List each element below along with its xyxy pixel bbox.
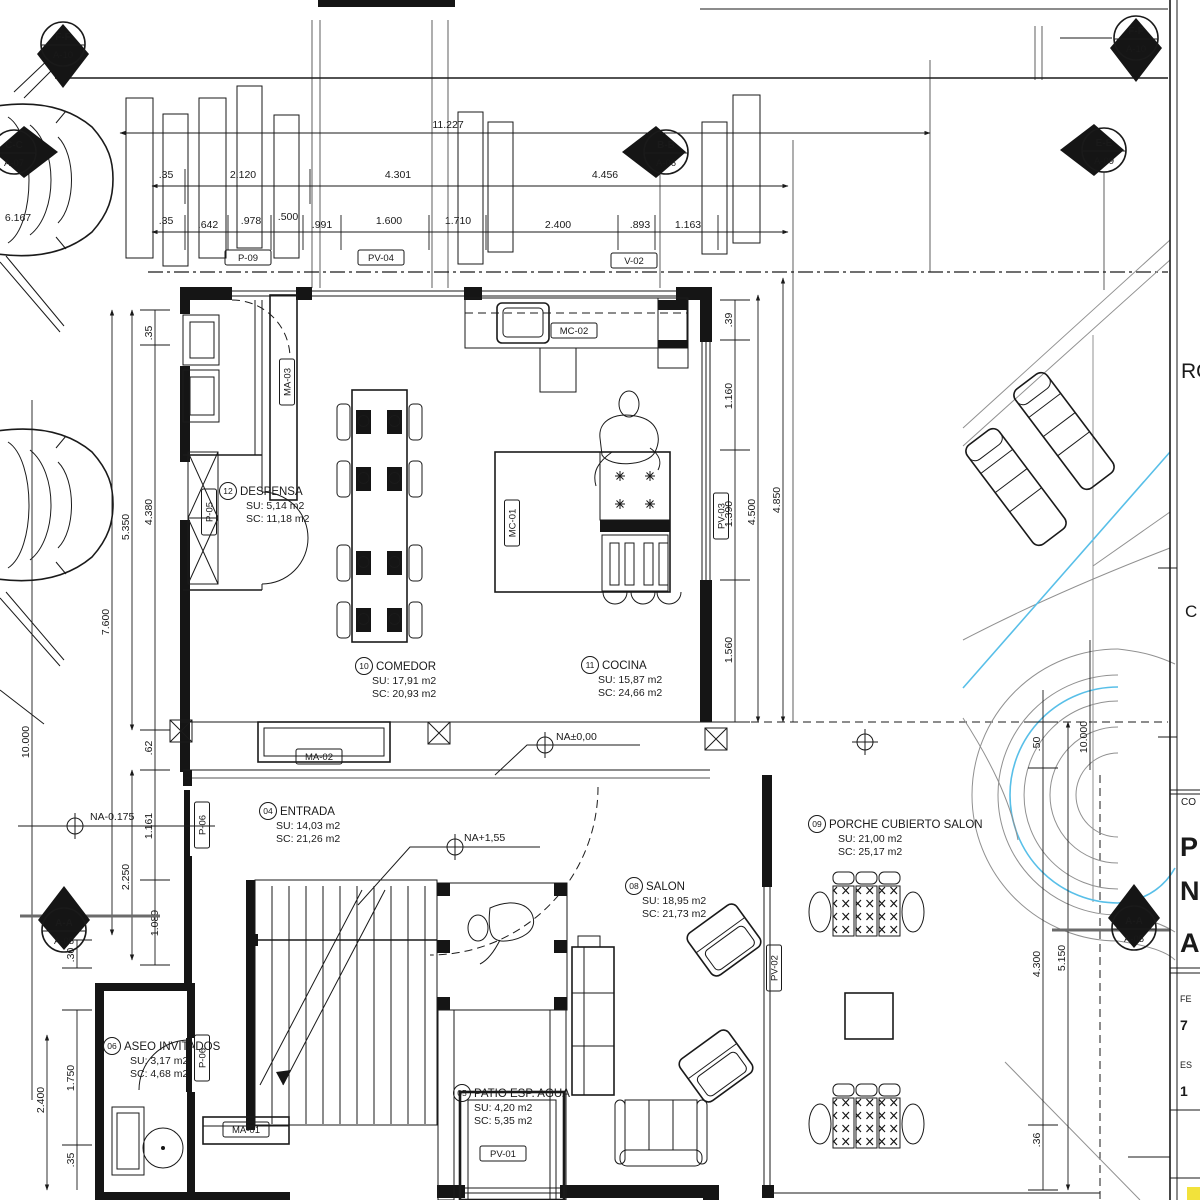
svg-text:1.163: 1.163 (675, 219, 701, 231)
level-ground: NA±0,00 (556, 731, 597, 743)
room-labels: 12 DESPENSA SU: 5,14 m2 SC: 11,18 m2 10 … (104, 483, 983, 1128)
tv-cabinet (572, 947, 614, 1095)
porch-sofa (809, 872, 924, 936)
door-swing-entrada (430, 787, 598, 955)
tag-ma03: MA-03 (280, 359, 295, 405)
svg-text:1.160: 1.160 (723, 383, 735, 409)
section-markers: F-F A-10 C-C A-07 B-B A-06 E-E A-09 F-F … (0, 16, 1170, 952)
svg-text:SU: 3,17 m2: SU: 3,17 m2 (130, 1055, 189, 1067)
svg-text:A-06: A-06 (656, 158, 676, 169)
svg-text:SC: 25,17 m2: SC: 25,17 m2 (838, 846, 902, 858)
svg-text:1.560: 1.560 (723, 637, 735, 663)
tag-pv02: PV-02 (767, 945, 782, 991)
svg-text:10.000: 10.000 (1078, 721, 1090, 753)
svg-text:SC: 21,26 m2: SC: 21,26 m2 (276, 833, 340, 845)
svg-text:PORCHE CUBIERTO SALON: PORCHE CUBIERTO SALON (829, 819, 983, 831)
tag-p06-entrada: P-06 (195, 802, 210, 848)
window-pv01 (465, 1188, 560, 1193)
svg-text:4.456: 4.456 (592, 169, 618, 181)
sun-lounger-2 (1011, 369, 1118, 492)
upper-level-openings (126, 86, 760, 266)
stairs (249, 880, 437, 1125)
svg-text:P-06: P-06 (198, 815, 209, 835)
svg-text:1.600: 1.600 (376, 215, 402, 227)
svg-text:SU: 4,20 m2: SU: 4,20 m2 (474, 1102, 533, 1114)
sun-lounger-1 (963, 425, 1070, 548)
svg-text:SALON: SALON (646, 881, 685, 893)
svg-text:PV-01: PV-01 (490, 1149, 516, 1160)
svg-text:MA-02: MA-02 (305, 752, 333, 763)
column-marker (705, 728, 727, 750)
svg-text:.35: .35 (159, 169, 174, 181)
svg-text:SC: 11,18 m2: SC: 11,18 m2 (246, 513, 310, 525)
svg-text:SU: 15,87 m2: SU: 15,87 m2 (598, 674, 662, 686)
kitchen (183, 295, 688, 604)
svg-text:.500: .500 (278, 211, 299, 223)
title-fragment-c: C (1185, 602, 1197, 621)
title-block: RO C CO P N A FE 7 ES 1 (1128, 0, 1200, 1200)
pool-landscape-curves (963, 240, 1175, 1200)
title-fragment-n: N (1180, 876, 1200, 906)
car-bottom (0, 429, 113, 581)
room-label-despensa: 12 DESPENSA SU: 5,14 m2 SC: 11,18 m2 (220, 483, 310, 526)
svg-text:10.000: 10.000 (20, 726, 32, 758)
porch-table (845, 993, 893, 1039)
room-label-salon: 08 SALON SU: 18,95 m2 SC: 21,73 m2 (626, 878, 707, 921)
level-upper: NA+1,55 (464, 832, 505, 844)
svg-text:SU: 14,03 m2: SU: 14,03 m2 (276, 820, 340, 832)
porch-furniture (809, 872, 924, 1148)
hatched-column-left (438, 1010, 454, 1200)
svg-text:MC-02: MC-02 (560, 326, 589, 337)
svg-text:PV-03: PV-03 (717, 503, 728, 529)
window-pv03 (702, 342, 710, 580)
svg-text:4.380: 4.380 (143, 499, 155, 525)
room-label-cocina: 11 COCINA SU: 15,87 m2 SC: 24,66 m2 (582, 657, 663, 700)
walls (95, 287, 1100, 1200)
svg-text:4.300: 4.300 (1031, 951, 1043, 977)
section-marker-bb: B-B A-06 (622, 126, 688, 178)
pantry-column (270, 295, 297, 500)
svg-text:.35: .35 (143, 326, 155, 341)
tag-pv01: PV-01 (480, 1146, 526, 1161)
title-fragment-fe: FE (1180, 994, 1192, 1004)
dining-chair-row (337, 404, 422, 440)
door-swing-garage (232, 300, 290, 358)
svg-text:06: 06 (107, 1041, 117, 1051)
column-marker (428, 722, 450, 744)
svg-text:C-C: C-C (5, 140, 23, 151)
svg-text:F-F: F-F (1128, 26, 1144, 37)
title-fragment-es: ES (1180, 1060, 1192, 1070)
svg-text:DESPENSA: DESPENSA (240, 486, 303, 498)
svg-text:P-06: P-06 (198, 1048, 209, 1068)
tag-v02: V-02 (611, 253, 657, 268)
svg-text:SC: 20,93 m2: SC: 20,93 m2 (372, 688, 436, 700)
armchair-2 (676, 1027, 755, 1104)
svg-text:11: 11 (586, 660, 595, 670)
svg-text:04: 04 (263, 806, 273, 816)
svg-text:SU: 21,00 m2: SU: 21,00 m2 (838, 833, 902, 845)
tag-p05: P-05 (202, 489, 217, 535)
svg-text:PATIO ESP. AGUA: PATIO ESP. AGUA (474, 1088, 570, 1100)
svg-text:4.500: 4.500 (746, 499, 758, 525)
svg-text:1.750: 1.750 (65, 1065, 77, 1091)
svg-text:10: 10 (359, 661, 369, 671)
svg-text:A-10: A-10 (53, 50, 73, 61)
svg-text:F-F: F-F (55, 32, 71, 43)
svg-text:4.301: 4.301 (385, 169, 411, 181)
svg-text:SU: 17,91 m2: SU: 17,91 m2 (372, 675, 436, 687)
aseo-fixtures (112, 1107, 183, 1175)
tag-pv04: PV-04 (358, 250, 404, 265)
floor-plan-sheet: 11.227 .35 2.120 4.301 4.456 .35 .642 .9… (0, 0, 1200, 1200)
dim-total: 11.227 (432, 119, 463, 131)
section-marker-ee: E-E A-09 (1060, 124, 1126, 176)
title-fragment-1: 1 (1180, 1083, 1188, 1099)
svg-text:E-E: E-E (1096, 138, 1113, 149)
svg-text:2.120: 2.120 (230, 169, 256, 181)
section-marker-cc: C-C A-07 (0, 126, 58, 178)
person-figure-patio (468, 903, 534, 964)
title-fragment-a: A (1180, 928, 1200, 958)
car-top (0, 104, 113, 256)
room-label-comedor: 10 COMEDOR SU: 17,91 m2 SC: 20,93 m2 (356, 658, 437, 701)
tag-mc01: MC-01 (505, 500, 520, 546)
svg-text:A-05: A-05 (1124, 934, 1144, 945)
svg-text:6.167: 6.167 (5, 212, 31, 224)
svg-text:SC: 5,35 m2: SC: 5,35 m2 (474, 1115, 533, 1127)
svg-text:COCINA: COCINA (602, 660, 647, 672)
svg-text:.35: .35 (159, 215, 174, 227)
title-fragment-7: 7 (1180, 1017, 1188, 1033)
svg-text:MA-01: MA-01 (232, 1125, 260, 1136)
svg-text:.893: .893 (630, 219, 651, 231)
svg-text:ENTRADA: ENTRADA (280, 806, 335, 818)
salon-sofa (615, 1100, 707, 1166)
svg-text:.62: .62 (143, 741, 155, 756)
tag-ma01: MA-01 (223, 1122, 269, 1137)
dimension-ticks (185, 169, 718, 250)
salon-furniture (572, 901, 764, 1166)
svg-text:5.350: 5.350 (120, 514, 132, 540)
svg-text:SC: 24,66 m2: SC: 24,66 m2 (598, 687, 662, 699)
svg-text:.642: .642 (198, 219, 219, 231)
svg-text:SU: 5,14 m2: SU: 5,14 m2 (246, 500, 305, 512)
title-fragment-p: P (1180, 832, 1198, 862)
svg-text:COMEDOR: COMEDOR (376, 661, 436, 673)
highlight-corner-mark (1187, 1187, 1200, 1200)
svg-text:A-A: A-A (55, 918, 73, 929)
svg-text:5.150: 5.150 (1056, 945, 1068, 971)
svg-text:PV-02: PV-02 (770, 955, 781, 981)
section-marker-ff-right: F-F A-10 (1110, 16, 1162, 82)
door-swing-despensa-2 (262, 538, 308, 584)
svg-text:12: 12 (223, 486, 233, 496)
tag-p09: P-09 (225, 250, 271, 265)
room-label-entrada: 04 ENTRADA SU: 14,03 m2 SC: 21,26 m2 (260, 803, 341, 846)
title-fragment-ro: RO (1181, 360, 1200, 383)
svg-text:.39: .39 (723, 313, 735, 328)
svg-text:1.089: 1.089 (149, 910, 161, 936)
svg-text:P-05: P-05 (205, 502, 216, 522)
svg-text:SC: 21,73 m2: SC: 21,73 m2 (642, 908, 706, 920)
door-leaf-entrada (184, 790, 190, 858)
svg-text:7.600: 7.600 (100, 609, 112, 635)
svg-text:05: 05 (457, 1088, 467, 1098)
svg-text:A-A: A-A (1125, 916, 1143, 927)
svg-text:A-07: A-07 (4, 158, 24, 169)
svg-text:2.400: 2.400 (35, 1087, 47, 1113)
tag-pv03: PV-03 (714, 493, 729, 539)
svg-text:PV-04: PV-04 (368, 253, 394, 264)
title-fragment-co: CO (1181, 797, 1196, 808)
svg-text:A-05: A-05 (54, 936, 74, 947)
tag-mc02: MC-02 (551, 323, 597, 338)
svg-text:MC-01: MC-01 (508, 509, 519, 538)
section-marker-aa-right: A-A A-05 (1108, 884, 1160, 950)
svg-text:2.250: 2.250 (120, 864, 132, 890)
svg-text:.50: .50 (1031, 737, 1043, 752)
svg-text:A-10: A-10 (1126, 44, 1146, 55)
svg-text:.36: .36 (1031, 1133, 1043, 1148)
svg-text:08: 08 (629, 881, 639, 891)
svg-text:.991: .991 (312, 219, 333, 231)
svg-text:SC: 4,68 m2: SC: 4,68 m2 (130, 1068, 189, 1080)
svg-text:2.400: 2.400 (545, 219, 571, 231)
bar-stools (603, 592, 681, 604)
element-tags: P-09 PV-04 V-02 MC-02 MA-02 MA-01 PV-01 … (195, 250, 782, 1161)
svg-text:P-09: P-09 (238, 253, 258, 264)
svg-text:V-02: V-02 (624, 256, 644, 267)
porch-sofa-2 (809, 1084, 924, 1148)
svg-text:.35: .35 (65, 1153, 77, 1168)
svg-text:09: 09 (812, 819, 822, 829)
level-exterior: NA-0.175 (90, 811, 135, 823)
floor-plan-drawing: 11.227 .35 2.120 4.301 4.456 .35 .642 .9… (0, 0, 1200, 1200)
window-pv02 (764, 887, 770, 1185)
svg-text:.978: .978 (241, 215, 262, 227)
svg-text:1.710: 1.710 (445, 215, 471, 227)
dining-set (337, 390, 422, 642)
svg-text:MA-03: MA-03 (283, 368, 294, 396)
section-marker-aa-left: A-A A-05 (38, 886, 90, 952)
room-label-porche: 09 PORCHE CUBIERTO SALON SU: 21,00 m2 SC… (809, 816, 983, 859)
svg-text:SU: 18,95 m2: SU: 18,95 m2 (642, 895, 706, 907)
svg-text:B-B: B-B (657, 140, 675, 151)
svg-text:4.850: 4.850 (771, 487, 783, 513)
svg-text:A-09: A-09 (1094, 156, 1114, 167)
